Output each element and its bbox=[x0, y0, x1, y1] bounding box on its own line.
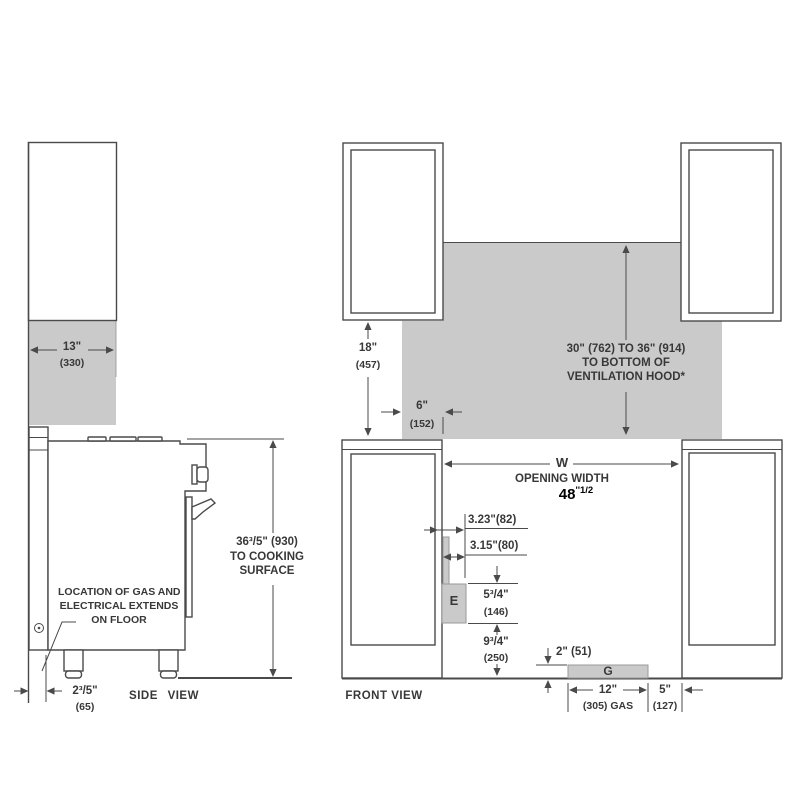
hood-clearance-line1: 30" (762) TO 36" (914) bbox=[544, 343, 708, 357]
side-shade-region bbox=[29, 321, 116, 425]
electrical-offset-lower: 3.15"(80) bbox=[470, 540, 532, 554]
installation-diagram: 13" (330) 36³/5" (930) TO COOKING SURFAC… bbox=[0, 0, 800, 800]
cooking-height-line2: TO COOKING bbox=[226, 551, 308, 565]
hood-clearance-line3: VENTILATION HOOD* bbox=[544, 371, 708, 385]
electrical-zone-symbol: E bbox=[442, 593, 466, 609]
arrowhead bbox=[21, 687, 29, 694]
arrowhead bbox=[393, 408, 401, 415]
arrowhead bbox=[544, 656, 551, 664]
hood-side-clearance-in: 6" bbox=[402, 400, 442, 414]
burner-grate bbox=[110, 437, 136, 441]
arrowhead bbox=[364, 428, 371, 436]
gas-zone-side-offset-in: 5" bbox=[650, 684, 680, 698]
door-handle-bar bbox=[186, 497, 192, 617]
rear-clearance-mm: (65) bbox=[60, 701, 110, 714]
burner-grate bbox=[88, 437, 106, 441]
base-cabinet-left-door bbox=[351, 454, 435, 645]
gas-note-line2: ELECTRICAL EXTENDS bbox=[58, 600, 180, 613]
gas-zone-width-in: 12" bbox=[592, 684, 624, 698]
gas-zone-height: 2" (51) bbox=[556, 646, 602, 660]
cooking-height-line3: SURFACE bbox=[226, 565, 308, 579]
front-view-label: FRONT VIEW bbox=[344, 690, 424, 704]
arrowhead bbox=[457, 553, 465, 560]
electrical-zone-height-in: 5³/4" bbox=[473, 589, 519, 603]
side-cabinet-depth-in: 13" bbox=[48, 341, 96, 355]
opening-width-fraction: ''1/2 bbox=[575, 485, 593, 496]
upper-cabinet-left-door bbox=[351, 150, 435, 313]
arrowhead bbox=[569, 686, 577, 693]
foot-base bbox=[161, 671, 177, 678]
arrowhead bbox=[456, 526, 464, 533]
hood-side-clearance-mm: (152) bbox=[402, 418, 442, 431]
side-view-label: SIDE VIEW bbox=[118, 690, 210, 704]
gas-note-line3: ON FLOOR bbox=[58, 614, 180, 627]
foot-base bbox=[66, 671, 82, 678]
cooking-height-value: 36³/5" (930) bbox=[226, 536, 308, 550]
arrowhead bbox=[493, 624, 500, 632]
arrowhead bbox=[47, 687, 55, 694]
gas-zone-width-mm: (305) GAS bbox=[574, 700, 642, 713]
upper-cabinet-height-mm: (457) bbox=[348, 359, 388, 372]
arrowhead bbox=[544, 680, 551, 688]
arrowhead bbox=[444, 460, 452, 467]
electrical-zone-floor-in: 9³/4" bbox=[473, 636, 519, 650]
opening-width-value: 48''1/2 bbox=[548, 485, 604, 504]
hood-clearance-shade-region bbox=[402, 242, 722, 439]
rear-clearance-in: 2³/5" bbox=[60, 685, 110, 699]
arrowhead bbox=[364, 322, 371, 330]
upper-cabinet-height-in: 18" bbox=[348, 342, 388, 356]
arrowhead bbox=[493, 668, 500, 676]
gas-note-line1: LOCATION OF GAS AND bbox=[58, 586, 180, 599]
upper-cabinet-right-door bbox=[689, 150, 773, 313]
knob-mount bbox=[192, 465, 197, 484]
opening-width-number: 48 bbox=[559, 486, 576, 503]
control-knob bbox=[197, 467, 208, 482]
gas-zone-side-offset-mm: (127) bbox=[647, 700, 683, 713]
side-trim-strip bbox=[443, 537, 449, 584]
base-cabinet-right-door bbox=[689, 453, 775, 645]
opening-width-symbol: W bbox=[550, 455, 574, 471]
gas-zone-symbol: G bbox=[568, 665, 648, 678]
arrowhead bbox=[671, 460, 679, 467]
electrical-zone-height-mm: (146) bbox=[473, 606, 519, 619]
diagram-linework bbox=[0, 0, 800, 800]
range-back-panel bbox=[29, 427, 48, 650]
arrowhead bbox=[639, 686, 647, 693]
arrowhead bbox=[684, 686, 692, 693]
burner-grate bbox=[138, 437, 162, 441]
arrowhead bbox=[493, 575, 500, 583]
range-foot bbox=[159, 650, 178, 671]
gas-fitting-center bbox=[38, 627, 41, 630]
hood-clearance-line2: TO BOTTOM OF bbox=[544, 357, 708, 371]
arrowhead bbox=[269, 669, 276, 677]
electrical-offset-upper: 3.23"(82) bbox=[468, 514, 532, 528]
side-cabinet-depth-mm: (330) bbox=[48, 357, 96, 370]
arrowhead bbox=[269, 440, 276, 448]
handle-bracket bbox=[192, 499, 215, 519]
electrical-zone-floor-mm: (250) bbox=[473, 652, 519, 665]
side-upper-cabinet bbox=[29, 143, 117, 321]
range-foot bbox=[64, 650, 83, 671]
